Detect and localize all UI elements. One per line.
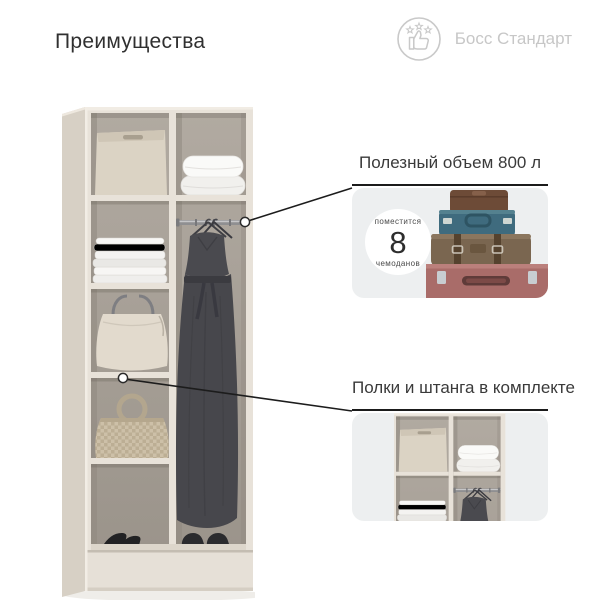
feature-volume: Полезный объем 800 л поместится 8 чемода… [352,153,548,298]
feature-volume-card: поместится 8 чемоданов [352,188,548,298]
suitcase-brown-fabric [431,234,531,267]
thumbs-up-stars-icon [396,16,442,62]
suitcase-stack-image [426,188,548,298]
badge-value: 8 [389,227,406,258]
page-title: Преимущества [55,30,205,54]
wardrobe-image [55,100,255,600]
feature-volume-title: Полезный объем 800 л [352,153,548,186]
suitcase-brown-top [450,190,508,213]
wardrobe-closeup-image [394,413,506,521]
suitcase-count-badge: поместится 8 чемоданов [365,209,431,275]
feature-included-card [352,413,548,521]
feature-included-title: Полки и штанга в комплекте [352,378,548,411]
suitcase-teal [439,210,515,237]
suitcase-rose [426,264,548,298]
feature-included: Полки и штанга в комплекте [352,378,548,521]
brand-name: Босс Стандарт [455,29,572,49]
brand-badge: Босс Стандарт [396,16,572,62]
callout-line-volume [250,188,353,221]
badge-text-bottom: чемоданов [376,259,420,268]
